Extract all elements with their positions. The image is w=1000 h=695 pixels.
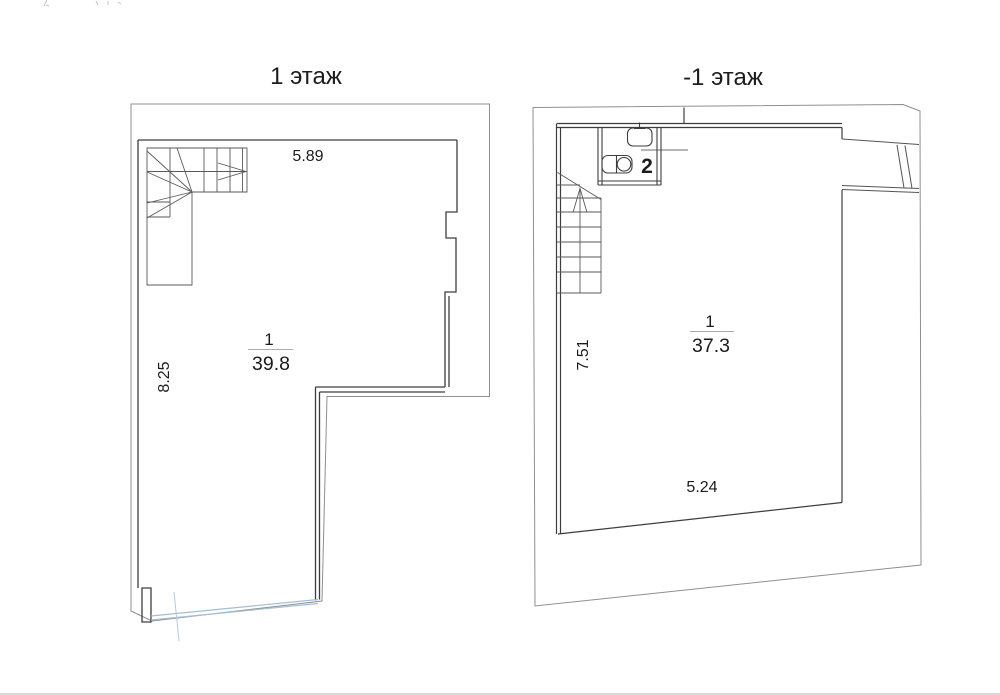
floor-minus-1-title: -1 этаж [683, 64, 763, 91]
floor-1-plan [131, 104, 490, 641]
floor-minus-1-room-area: 37.3 [692, 335, 730, 357]
floor-1-room-area: 39.8 [252, 353, 290, 375]
floor-plan-page: 1 этаж 5.89 8.25 1 39.8 -1 этаж 7.51 1 3… [0, 0, 1000, 695]
sink-icon [602, 156, 632, 174]
bathroom-room-number: 2 [641, 155, 653, 178]
floor-minus-1-room-walls [557, 108, 843, 535]
floor-1-room-number: 1 [264, 330, 273, 349]
floor-1-dim-top: 5.89 [292, 148, 323, 165]
toilet-icon [628, 123, 653, 147]
floor-minus-1-dim-bottom: 5.24 [686, 479, 717, 496]
floor-minus-1-room-number: 1 [705, 312, 714, 331]
floor-minus-1-staircase [557, 173, 601, 294]
floor-minus-1-dim-left: 7.51 [575, 339, 592, 370]
floor-1-axis-line [174, 592, 179, 641]
floor-1-staircase [147, 148, 247, 285]
floor-1-title: 1 этаж [270, 63, 342, 90]
floor-minus-1-entry-recess [842, 139, 919, 193]
floor-1-outer-boundary [131, 104, 490, 621]
cropped-text-fragment [44, 0, 121, 6]
floor-plan-drawing: 1 этаж 5.89 8.25 1 39.8 -1 этаж 7.51 1 3… [0, 0, 1000, 695]
floor-1-dim-left: 8.25 [156, 361, 173, 392]
floor-1-room-walls [138, 140, 457, 622]
